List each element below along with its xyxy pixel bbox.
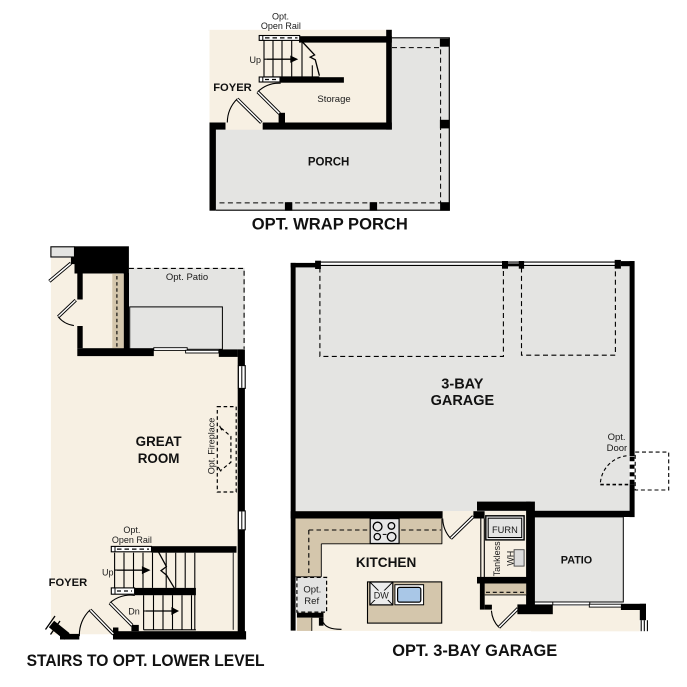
svg-text:Up: Up — [102, 567, 114, 577]
svg-text:Opt. Fireplace: Opt. Fireplace — [207, 418, 217, 475]
svg-text:Dn: Dn — [128, 606, 140, 616]
svg-text:FURN: FURN — [492, 525, 518, 535]
svg-text:GREAT: GREAT — [136, 434, 183, 449]
svg-text:OPT. WRAP PORCH: OPT. WRAP PORCH — [252, 216, 408, 234]
svg-text:Opt.: Opt. — [608, 432, 626, 443]
svg-text:Open Rail: Open Rail — [261, 21, 301, 31]
svg-text:Storage: Storage — [317, 94, 350, 105]
svg-text:3-BAY: 3-BAY — [441, 377, 484, 393]
svg-text:OPT. 3-BAY GARAGE: OPT. 3-BAY GARAGE — [392, 642, 557, 660]
svg-text:Opt.: Opt. — [272, 12, 289, 22]
svg-text:KITCHEN: KITCHEN — [356, 555, 416, 570]
svg-text:Open Rail: Open Rail — [112, 535, 152, 545]
svg-text:Opt.: Opt. — [123, 525, 140, 535]
svg-text:FOYER: FOYER — [213, 82, 252, 94]
svg-text:PATIO: PATIO — [561, 554, 592, 566]
svg-text:FOYER: FOYER — [49, 577, 88, 589]
svg-text:GARAGE: GARAGE — [431, 393, 495, 409]
svg-text:Up: Up — [250, 55, 262, 65]
svg-text:PORCH: PORCH — [308, 156, 350, 168]
svg-text:WH: WH — [505, 551, 515, 566]
svg-text:Tankless: Tankless — [492, 541, 502, 577]
svg-text:Opt. Patio: Opt. Patio — [166, 272, 208, 283]
svg-text:Door: Door — [607, 443, 628, 454]
svg-text:Ref: Ref — [304, 596, 319, 607]
svg-text:STAIRS TO OPT. LOWER LEVEL: STAIRS TO OPT. LOWER LEVEL — [27, 652, 265, 670]
svg-text:Opt.: Opt. — [303, 585, 321, 596]
svg-text:DW: DW — [374, 591, 389, 601]
svg-text:ROOM: ROOM — [138, 451, 180, 466]
